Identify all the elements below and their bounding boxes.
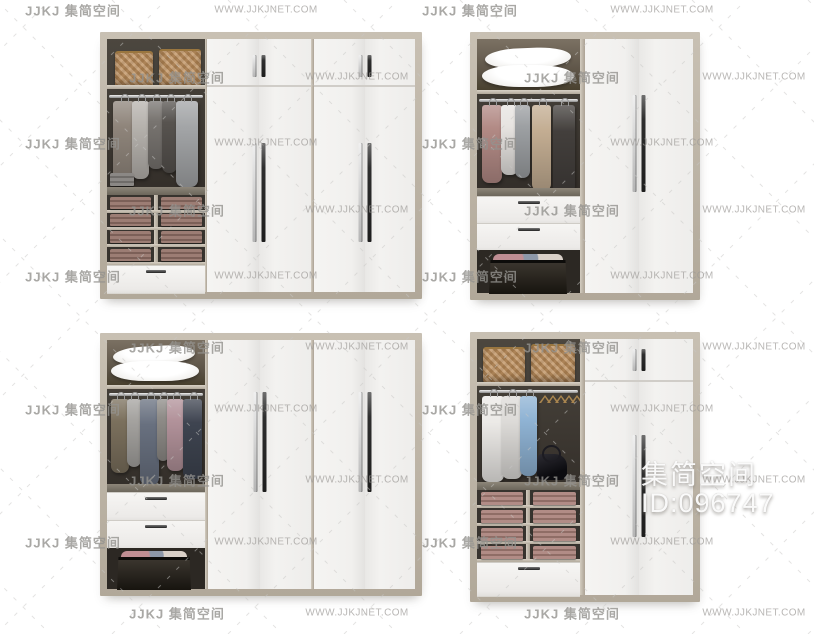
section-floor	[107, 484, 205, 492]
hanging-shirt	[520, 396, 537, 476]
door-handles	[358, 143, 371, 242]
hanging-shirt	[482, 396, 504, 482]
drawer-handle	[145, 525, 167, 528]
site-watermark: WWW.JJKJNET.COM	[214, 5, 317, 16]
cabinet-door	[365, 39, 416, 85]
folded-clothes-stack	[481, 528, 523, 541]
drawer	[107, 492, 205, 522]
open-shelf-column	[107, 340, 205, 589]
hanging-garment	[482, 105, 502, 183]
lower-doors	[207, 87, 311, 292]
folded-clothes-stack	[481, 546, 523, 559]
cabinet-door	[207, 87, 259, 292]
dash-line	[808, 0, 814, 634]
hanging-garment	[183, 399, 202, 479]
cabinet-door	[639, 39, 693, 293]
site-watermark: WWW.JJKJNET.COM	[305, 608, 408, 619]
folded-clothes-stack	[533, 528, 576, 541]
shelf	[477, 541, 580, 544]
door-handles	[253, 392, 266, 492]
cabinet-door	[365, 87, 416, 292]
dash-line	[692, 0, 814, 634]
upper-doors	[207, 39, 311, 85]
brand-watermark: JJKJ 集简空间	[129, 604, 225, 623]
dash-line	[692, 0, 814, 634]
fabric-storage-box	[117, 557, 191, 590]
dash-line	[0, 0, 50, 634]
pillow	[111, 361, 199, 381]
wardrobe-top-right	[470, 32, 700, 300]
hanging-rail-section	[107, 389, 205, 492]
door-handle-bar	[367, 392, 371, 492]
cubby-zone	[107, 195, 205, 265]
pillow-shelf-zone	[477, 39, 580, 90]
drawer	[107, 265, 205, 294]
door-handles	[633, 435, 646, 537]
door-section	[314, 39, 415, 292]
folded-clothes-stack	[161, 214, 202, 226]
site-watermark: WWW.JJKJNET.COM	[702, 608, 805, 619]
hanging-rail-section	[107, 89, 205, 195]
drawer	[477, 223, 580, 252]
shelf	[107, 210, 205, 213]
cubby-zone	[477, 490, 580, 562]
hanging-garment	[515, 105, 530, 178]
door-handle-bar	[633, 349, 637, 371]
folded-clothes-stack	[161, 249, 202, 261]
storage-basket	[483, 347, 525, 382]
door-section	[585, 39, 693, 293]
cabinet-door	[207, 39, 259, 85]
drawer	[107, 520, 205, 550]
door-handle-bar	[253, 143, 257, 242]
shelf	[477, 523, 580, 526]
folded-clothes-stack	[533, 546, 576, 559]
pillow-shelf-zone	[107, 340, 205, 385]
door-handles	[253, 55, 266, 77]
cabinet-door	[585, 339, 639, 380]
door-handle-bar	[253, 55, 257, 77]
basket-shelf-zone	[107, 39, 205, 85]
cabinet-door	[208, 340, 260, 589]
dash-line	[0, 0, 50, 634]
site-watermark: WWW.JJKJNET.COM	[702, 72, 805, 83]
hanging-garment	[162, 101, 177, 173]
folded-clothes-pile	[110, 173, 134, 186]
folded-clothes-stack	[110, 214, 151, 226]
door-handle-bar	[642, 435, 646, 537]
folded-clothes-stack	[110, 249, 151, 261]
lower-doors	[585, 382, 693, 595]
brand-watermark: JJKJ 集简空间	[25, 1, 121, 20]
door-handle-bar	[358, 392, 362, 492]
cubby-divider	[154, 195, 158, 265]
dash-line	[808, 0, 814, 634]
drawer	[477, 562, 580, 597]
open-shelf-column	[477, 339, 580, 595]
cabinet-door	[639, 382, 693, 595]
folded-clothes-stack	[161, 197, 202, 209]
hanging-garment	[127, 399, 141, 467]
door-handle-bar	[262, 55, 266, 77]
cabinet-door	[259, 87, 311, 292]
drawer-handle	[518, 201, 540, 204]
door-handles	[253, 143, 266, 242]
cabinet-door	[585, 382, 639, 595]
hanging-garment	[553, 105, 575, 193]
wardrobe-bottom-right	[470, 332, 700, 602]
site-watermark: WWW.JJKJNET.COM	[702, 475, 805, 486]
handbag	[537, 454, 567, 480]
open-shelf-column	[477, 39, 580, 293]
drawer	[477, 196, 580, 225]
door-section	[585, 339, 693, 595]
cabinet-door	[314, 340, 365, 589]
cabinet-door	[365, 340, 416, 589]
cabinet-door	[314, 39, 365, 85]
open-shelf-column	[107, 39, 205, 292]
wardrobe-bottom-left	[100, 333, 422, 596]
hanging-rail-section	[477, 94, 580, 196]
wardrobe-top-left	[100, 32, 422, 299]
hanging-garment	[132, 101, 149, 179]
storage-basket	[115, 51, 153, 86]
door-handles	[358, 55, 371, 77]
upper-doors	[585, 339, 693, 380]
shelf	[107, 227, 205, 230]
pillow	[482, 65, 574, 87]
hanging-garment	[167, 399, 184, 471]
door-handles	[633, 95, 646, 192]
cabinet-door	[639, 339, 693, 380]
folded-clothes-stack	[533, 492, 576, 505]
door-section	[207, 39, 311, 292]
shelf	[477, 505, 580, 508]
basket-shelf-zone	[477, 339, 580, 382]
door-handles	[633, 349, 646, 371]
storage-basket	[159, 49, 201, 86]
lower-doors	[314, 87, 415, 292]
site-watermark: WWW.JJKJNET.COM	[702, 205, 805, 216]
drawer-handle	[146, 270, 166, 273]
door-handle-bar	[358, 55, 362, 77]
cabinet-door	[314, 87, 365, 292]
cabinet-door	[260, 340, 312, 589]
upper-doors	[314, 39, 415, 85]
door-handle-bar	[253, 392, 257, 492]
door-section	[208, 340, 311, 589]
storage-basket	[531, 344, 575, 382]
site-watermark: WWW.JJKJNET.COM	[610, 5, 713, 16]
shelf	[107, 244, 205, 247]
hanging-garment	[532, 105, 551, 191]
door-handle-bar	[262, 143, 266, 242]
door-handle-bar	[633, 95, 637, 192]
door-handle-bar	[262, 392, 266, 492]
door-handle-bar	[358, 143, 362, 242]
brand-watermark: JJKJ 集简空间	[524, 604, 620, 623]
door-handle-bar	[642, 349, 646, 371]
door-handle-bar	[367, 55, 371, 77]
door-handle-bar	[642, 95, 646, 192]
door-section	[314, 340, 415, 589]
door-handle-bar	[633, 435, 637, 537]
section-floor	[477, 482, 580, 490]
drawer-handle	[518, 228, 540, 231]
folded-clothes-stack	[533, 510, 576, 523]
hanging-rail-section	[477, 386, 580, 490]
brand-watermark: JJKJ 集简空间	[422, 1, 518, 20]
folded-clothes-stack	[481, 492, 523, 505]
door-handle-bar	[367, 143, 371, 242]
drawer-handle	[518, 567, 540, 570]
box-zone	[107, 548, 205, 589]
section-floor	[477, 188, 580, 196]
product-render-canvas: JJKJ 集简空间WWW.JJKJNET.COMJJKJ 集简空间WWW.JJK…	[0, 0, 814, 634]
door-handles	[358, 392, 371, 492]
folded-clothes-stack	[110, 197, 151, 209]
cabinet-door	[259, 39, 311, 85]
cabinet-door	[585, 39, 639, 293]
section-floor	[107, 187, 205, 195]
hanging-shirt	[502, 396, 522, 479]
cubby-divider	[526, 490, 530, 562]
folded-clothes-stack	[161, 231, 202, 243]
folded-clothes-stack	[110, 231, 151, 243]
folded-clothes-stack	[481, 510, 523, 523]
drawer-handle	[145, 497, 167, 500]
fabric-storage-box	[489, 260, 567, 294]
site-watermark: WWW.JJKJNET.COM	[702, 342, 805, 353]
hanging-garment	[176, 101, 198, 187]
box-zone	[477, 250, 580, 293]
